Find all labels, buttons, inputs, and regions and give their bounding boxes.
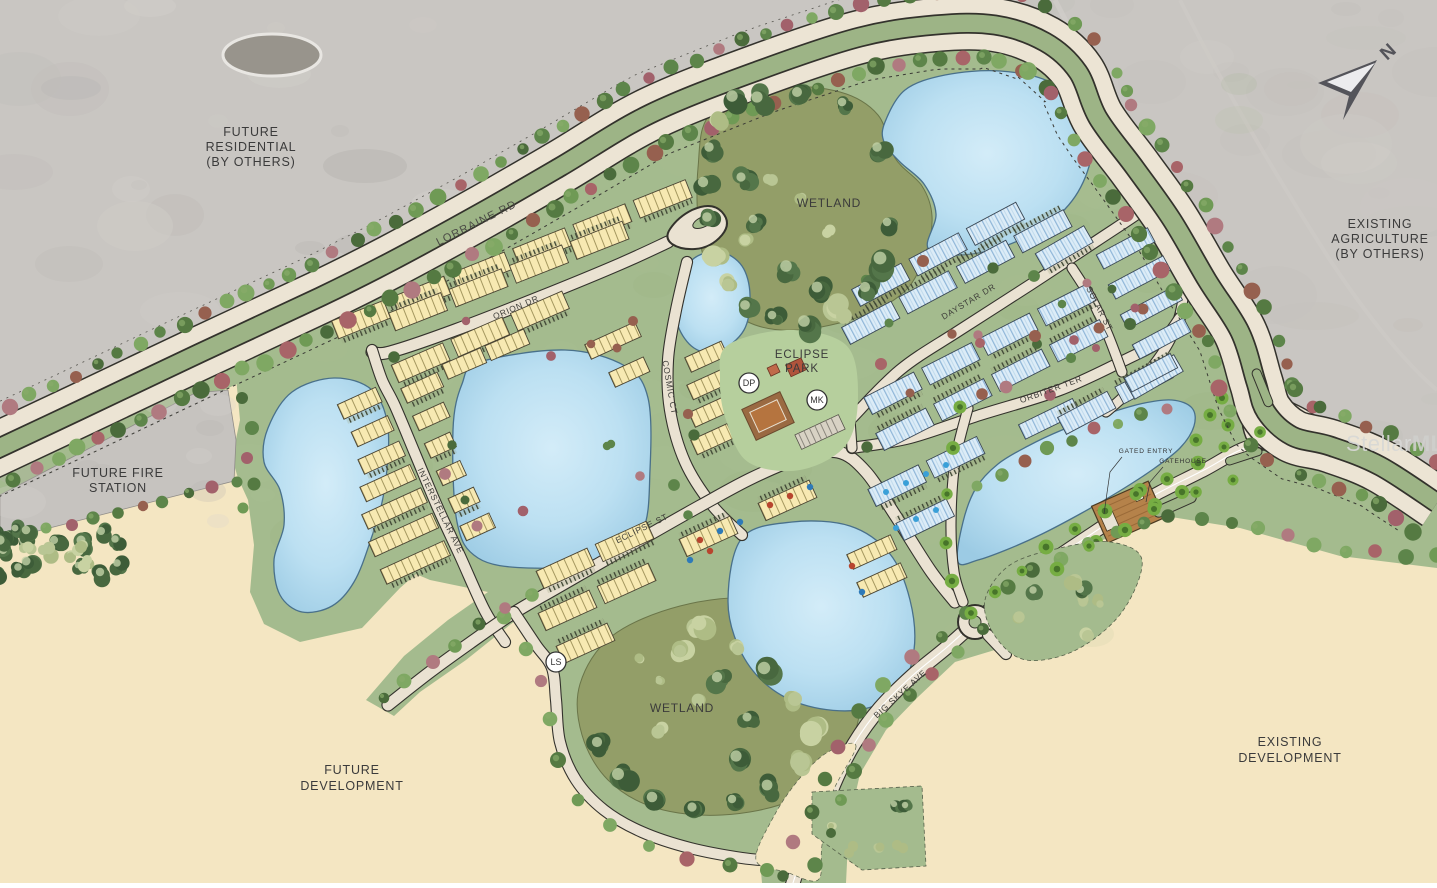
svg-text:GATED ENTRY: GATED ENTRY xyxy=(1119,448,1173,455)
svg-text:WETLAND: WETLAND xyxy=(650,701,714,715)
svg-text:DEVELOPMENT: DEVELOPMENT xyxy=(1238,751,1341,765)
svg-text:WETLAND: WETLAND xyxy=(797,196,861,210)
svg-text:FUTURE FIRE: FUTURE FIRE xyxy=(72,466,163,480)
svg-text:DP: DP xyxy=(743,378,756,388)
svg-text:AGRICULTURE: AGRICULTURE xyxy=(1331,232,1428,246)
svg-text:EXISTING: EXISTING xyxy=(1348,217,1413,231)
svg-text:ECLIPSE: ECLIPSE xyxy=(775,349,829,361)
svg-text:EXISTING: EXISTING xyxy=(1258,735,1323,749)
svg-text:GATEHOUSE: GATEHOUSE xyxy=(1159,458,1207,465)
svg-text:PARK: PARK xyxy=(785,363,819,375)
svg-text:StellarMLS: StellarMLS xyxy=(1346,431,1437,456)
svg-text:STATION: STATION xyxy=(89,481,147,495)
svg-text:(BY OTHERS): (BY OTHERS) xyxy=(206,155,295,169)
svg-text:DEVELOPMENT: DEVELOPMENT xyxy=(300,779,403,793)
svg-text:MK: MK xyxy=(810,395,824,405)
svg-text:FUTURE: FUTURE xyxy=(324,763,380,777)
svg-text:LS: LS xyxy=(550,657,561,667)
svg-text:FUTURE: FUTURE xyxy=(223,125,279,139)
svg-text:(BY OTHERS): (BY OTHERS) xyxy=(1335,247,1424,261)
svg-text:RESIDENTIAL: RESIDENTIAL xyxy=(206,140,297,154)
